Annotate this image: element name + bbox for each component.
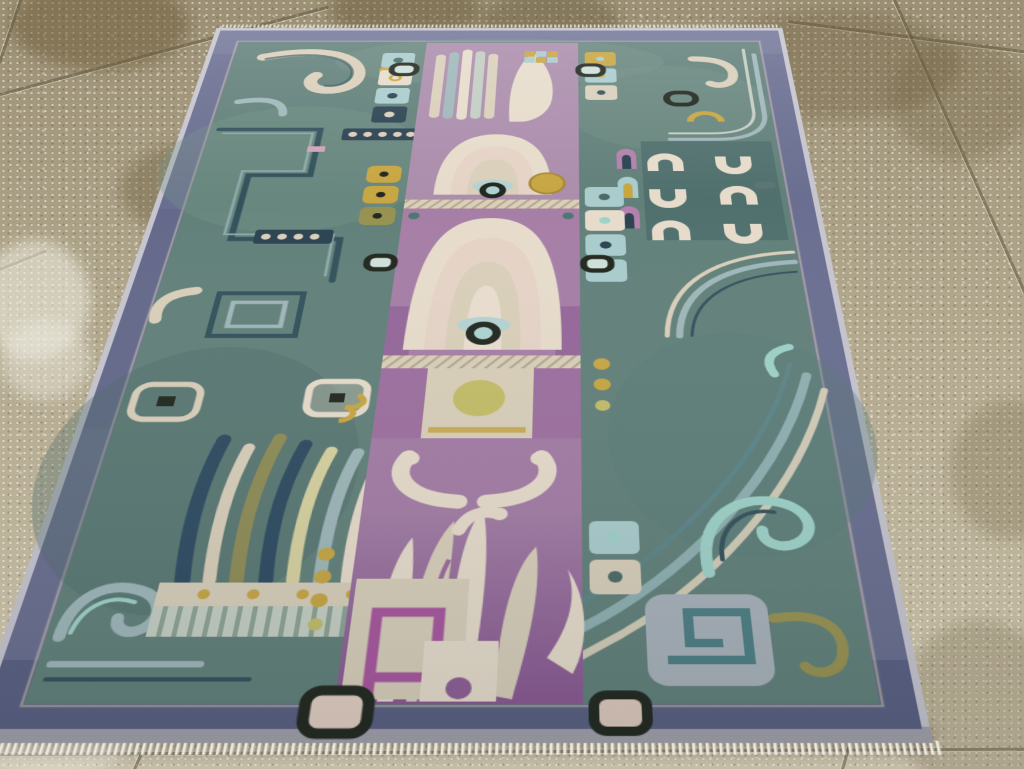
fringe-top (220, 24, 779, 27)
floor-stain (890, 40, 1024, 160)
floor-stain (10, 0, 190, 70)
floor-stain (0, 320, 90, 400)
floor-stain (950, 400, 1024, 540)
photo-scene (0, 0, 1024, 769)
